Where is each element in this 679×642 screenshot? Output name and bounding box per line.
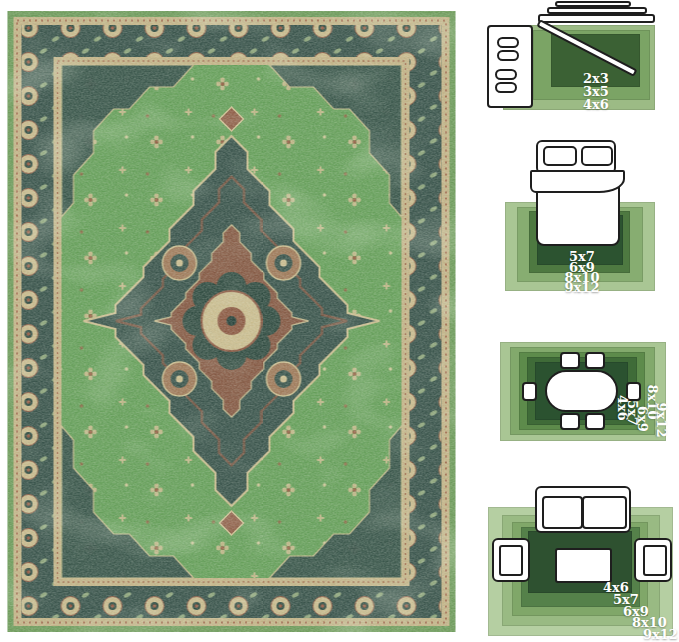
sofa-cushion: [582, 496, 627, 529]
dining-chair: [560, 413, 580, 430]
dining-chair: [585, 413, 605, 430]
dining-chair: [560, 352, 580, 369]
bench-cushion: [497, 50, 519, 61]
sofa: [535, 486, 631, 533]
bed-pillow: [543, 146, 577, 166]
armchair-cushion: [643, 545, 667, 576]
armchair-left: [492, 538, 530, 582]
dining-chair: [522, 382, 537, 401]
armchair-cushion: [499, 545, 523, 576]
coffee-table: [555, 548, 612, 583]
bench-cushion: [495, 69, 517, 80]
size-label-9x12: 9x12: [655, 403, 668, 438]
console-table-shelf-mid: [547, 7, 647, 14]
armchair-right: [634, 538, 672, 582]
dining-table: [545, 370, 618, 412]
size-label-9x12: 9x12: [643, 628, 678, 641]
bed-pillow: [581, 146, 613, 166]
console-table: [538, 14, 655, 23]
dining-chair: [585, 352, 605, 369]
bed-duvet-fold: [530, 170, 625, 193]
size-label-9x12: 9x12: [552, 281, 612, 294]
bench-cushion: [495, 82, 517, 93]
dark-grain-overlay: [8, 11, 456, 632]
bench-cushion: [497, 37, 519, 48]
rug-photo: [7, 11, 456, 632]
sofa-cushion: [542, 496, 583, 529]
product-image: 2x3 3x5 4x6 5x7 6x9 8x10 9x12 4x6 5x7: [0, 0, 679, 642]
size-label-4x6: 4x6: [566, 98, 626, 111]
